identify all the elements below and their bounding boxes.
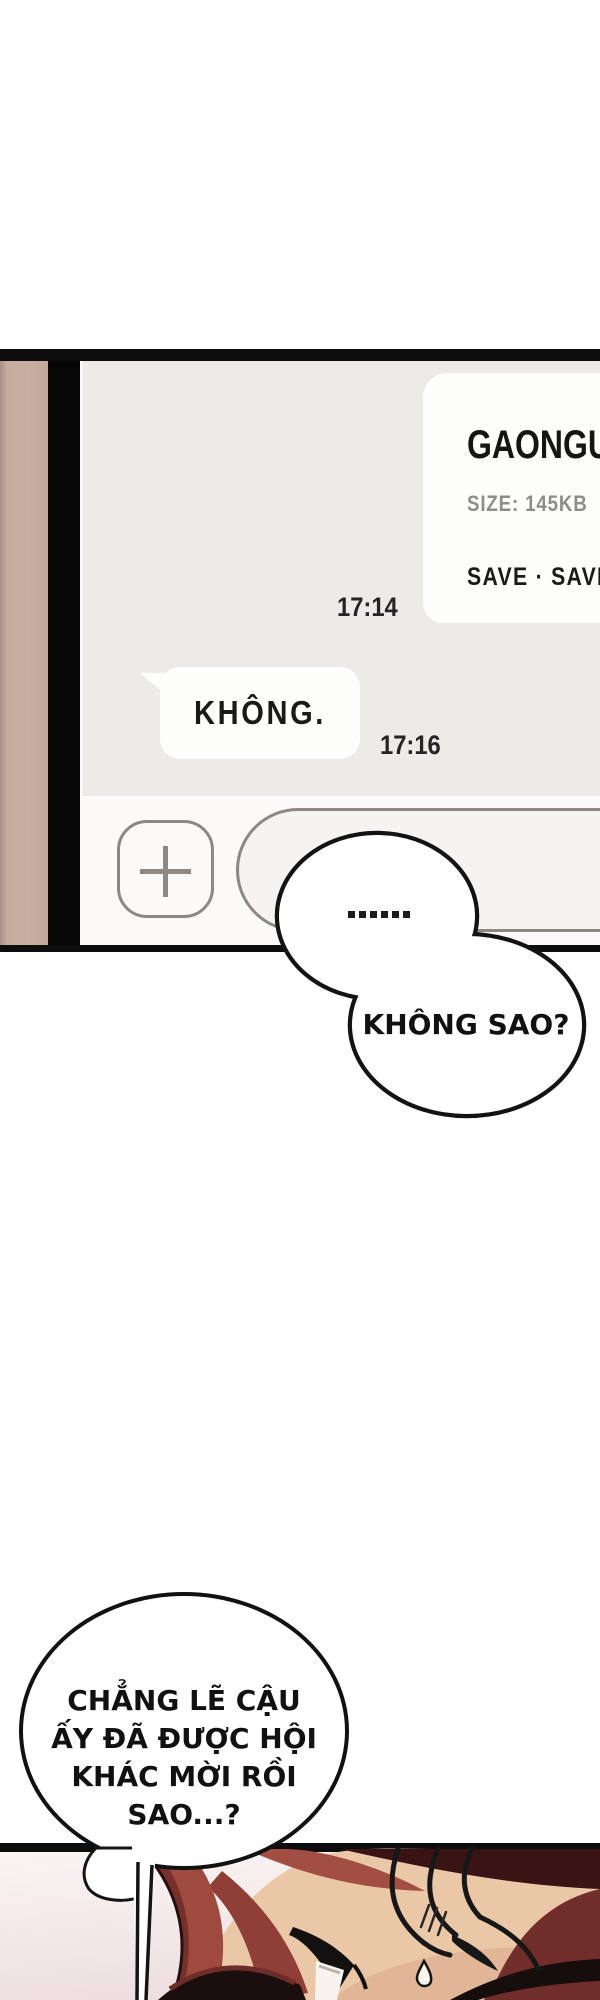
save-buttons[interactable]: SAVE · SAVE: [467, 563, 600, 592]
bubble-line: ẤY ĐÃ ĐƯỢC HỘI: [23, 1720, 345, 1758]
photo-edge-strip: [0, 361, 48, 945]
file-size-label: SIZE: 145KB: [467, 491, 588, 517]
bubble-line: SAO...?: [23, 1796, 345, 1834]
plus-icon: [163, 846, 168, 897]
file-title: GAONGUIL: [467, 423, 600, 468]
khong-sao-bubble-text: KHÔNG SAO?: [360, 1008, 572, 1041]
timestamp-1716: 17:16: [380, 730, 441, 761]
ellipsis-bubble-text: [346, 906, 412, 922]
file-message-bubble[interactable]: GAONGUIL SIZE: 145KB SAVE · SAVE: [423, 373, 600, 623]
bubble-tail: [140, 673, 166, 695]
bubble-line: CHẲNG LẼ CẬU: [23, 1682, 345, 1720]
speech-bubble-circles: [260, 820, 600, 1120]
bottom-speech-bubble: CHẲNG LẼ CẬU ẤY ĐÃ ĐƯỢC HỘI KHÁC MỜI RỒI…: [19, 1592, 349, 1870]
phone-bezel-bar: [48, 361, 80, 945]
reply-text: KHÔNG.: [194, 694, 326, 732]
speech-bubble-tail: [80, 1846, 160, 2000]
timestamp-1714: 17:14: [337, 592, 398, 623]
bubble-line: KHÁC MỜI RỒI: [23, 1758, 345, 1796]
webtoon-page: GAONGUIL SIZE: 145KB SAVE · SAVE 17:14 K…: [0, 0, 600, 2000]
add-attachment-button[interactable]: [117, 820, 214, 918]
reply-message-bubble[interactable]: KHÔNG.: [160, 667, 360, 759]
